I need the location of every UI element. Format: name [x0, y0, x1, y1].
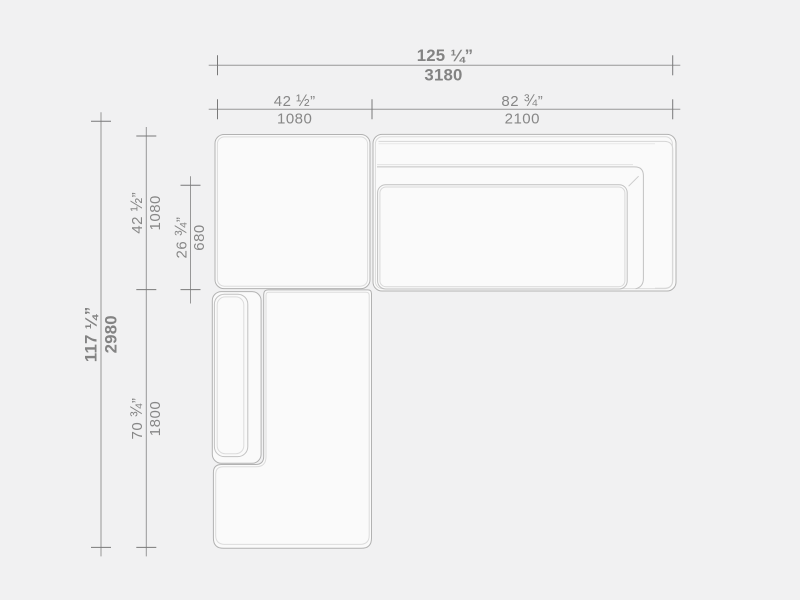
svg-text:1080: 1080: [277, 111, 312, 128]
svg-text:1800: 1800: [147, 401, 164, 436]
svg-text:3180: 3180: [424, 65, 462, 84]
svg-text:680: 680: [191, 224, 208, 251]
svg-text:70 ¾”: 70 ¾”: [128, 398, 146, 440]
svg-text:117 ¼”: 117 ¼”: [82, 306, 101, 362]
svg-text:82 ¾”: 82 ¾”: [501, 92, 543, 110]
svg-text:2100: 2100: [505, 111, 540, 128]
svg-text:1080: 1080: [147, 195, 164, 230]
svg-text:26 ¾”: 26 ¾”: [172, 217, 190, 259]
svg-text:2980: 2980: [101, 315, 120, 353]
svg-text:42 ½”: 42 ½”: [274, 92, 316, 110]
svg-text:42 ½”: 42 ½”: [128, 192, 146, 234]
svg-text:125 ¼”: 125 ¼”: [417, 46, 474, 65]
